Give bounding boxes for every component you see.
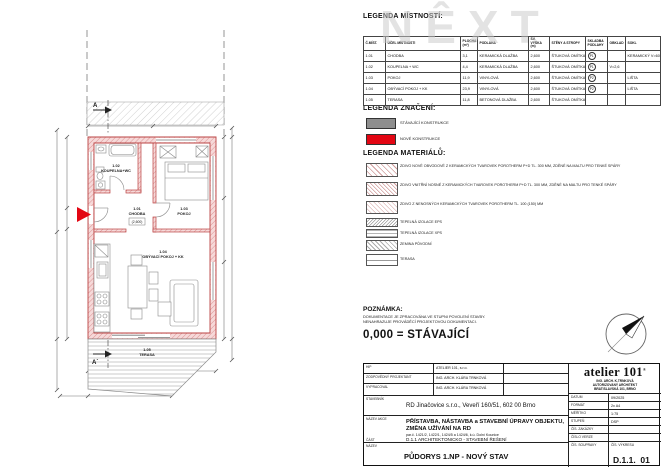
ground-hatch-band — [87, 102, 224, 125]
client-cell: STAVEBNÍK RD Jinačovice s.r.o., Veveří 1… — [364, 396, 569, 416]
floor-layer-badge: P2 — [588, 85, 597, 94]
cell: KOUPELNA + WC — [386, 62, 461, 73]
material-swatch — [366, 218, 398, 227]
drawing-number-cell: ČÍS. VÝKRESU D.1.1. 01 — [609, 442, 661, 467]
section-label-top: A — [93, 103, 98, 109]
meta-value — [609, 434, 661, 442]
floor-layer-badge: P2 — [588, 74, 597, 83]
stove-icon — [95, 292, 109, 306]
note-line: NENAHRAZUJE PROVÁDĚCÍ PROJEKTOVOU DOKUME… — [363, 319, 477, 324]
meta-label: FORMÁT — [569, 402, 609, 410]
project-title-line1: PŘÍSTAVBA, NÁSTAVBA a STAVEBNÍ ÚPRAVY OB… — [406, 419, 564, 425]
logo-line: BRATISLAVSKÁ 101, BRNO — [569, 387, 661, 391]
cell: V=2,6 — [608, 62, 626, 73]
section-label-bottom: A´ — [92, 360, 98, 366]
meta-label: ČÍSLO VERZE — [569, 434, 609, 442]
chair-icon — [149, 272, 158, 284]
cell — [608, 73, 626, 84]
cabinet-icon — [196, 146, 208, 157]
zero-level-note: 0,000 = STÁVAJÍCÍ — [363, 329, 469, 341]
signature-cell — [504, 364, 569, 374]
cell: POKOJ — [386, 73, 461, 84]
room-label-number: 1.04 — [159, 250, 167, 254]
wardrobe-icon — [160, 146, 176, 158]
cell: P1 — [586, 51, 608, 62]
table-row: 1.01 CHODBA 3,1 KERAMICKÁ DLAŽBA 2,600 Š… — [364, 51, 661, 62]
drawing-number: D.1.1. 01 — [613, 455, 650, 465]
room-label-name: CHODBA — [129, 212, 146, 216]
legend-label: NOVÉ KONSTRUKCE — [400, 136, 440, 141]
cell: PLOCHA (m²) — [461, 37, 478, 51]
dining-table-icon — [128, 266, 147, 308]
studio-logo: atelier 101® — [569, 366, 661, 379]
cell: LIŠTA — [626, 84, 661, 95]
legend-label: STÁVAJÍCÍ KONSTRUKCE — [400, 120, 449, 125]
legend-label: ZEMINA PŮVODNÍ — [400, 242, 432, 247]
cell — [586, 95, 608, 106]
cell: 2,600 — [529, 51, 550, 62]
cell: LIŠTA — [626, 73, 661, 84]
titleblock-label: ČÁST — [364, 437, 375, 442]
table-row: 1.04 OBÝVACÍ POKOJ + KK 23,9 VINYLOVÁ 2,… — [364, 84, 661, 95]
terrace — [88, 339, 216, 396]
cell: TERASA — [386, 95, 461, 106]
sink-icon — [97, 262, 108, 278]
room-label-name: TERASA — [139, 353, 155, 357]
cell: KERAMICKÁ DLAŽBA — [478, 51, 529, 62]
meta-value: 2x A4 — [609, 402, 661, 410]
north-arrow-icon — [600, 308, 652, 360]
material-swatch — [366, 163, 398, 177]
table-row: 1.05 TERASA 11,8 BETONOVÁ DLAŽBA 2,600 Š… — [364, 95, 661, 106]
meta-label: MĚŘÍTKO — [569, 410, 609, 418]
meta-label: STUPEŇ — [569, 418, 609, 426]
cell: SV. VÝŠKA (m) — [529, 37, 550, 51]
room-label-number: 1.01 — [133, 207, 140, 211]
cell: 1.02 — [364, 62, 386, 73]
rooms-legend-table: Č.MÍST. ÚČEL MÍSTNOSTI PLOCHA (m²) PODLA… — [363, 36, 661, 106]
project-title-line2: ZMĚNA UŽÍVÁNÍ NA RD — [406, 426, 471, 432]
room-label-name: KOUPELNA+WC — [101, 169, 131, 173]
signature-cell — [504, 384, 569, 396]
material-swatch — [366, 201, 398, 214]
room-label-number: 1.05 — [143, 348, 150, 352]
floor-plan: A — [0, 0, 363, 468]
material-swatch — [366, 182, 398, 196]
cell — [608, 51, 626, 62]
material-swatch — [366, 229, 398, 238]
titleblock-value: ING. ARCH. KLÁRA TRNKOVÁ — [434, 374, 504, 384]
cell: VINYLOVÁ — [478, 84, 529, 95]
cell: 11,8 — [461, 95, 478, 106]
cell: P1 — [586, 62, 608, 73]
legend-label: ZDIVO VNITŘNÍ NOSNÉ Z KERAMICKÝCH TVAROV… — [400, 183, 650, 188]
cell: VINYLOVÁ — [478, 73, 529, 84]
client-value: RD Jinačovice s.r.o., Veveří 160/51, 602… — [406, 403, 535, 409]
cell: P2 — [586, 73, 608, 84]
cell: Č.MÍST. — [364, 37, 386, 51]
chair-icon — [131, 309, 142, 319]
table-row: 1.03 POKOJ 11,9 VINYLOVÁ 2,600 ŠTUKOVÁ O… — [364, 73, 661, 84]
existing-construction-swatch — [366, 118, 396, 129]
cell: 2,600 — [529, 95, 550, 106]
cell: 1.04 — [364, 84, 386, 95]
titleblock-label: ČÍS. VÝKRESU — [609, 442, 661, 447]
titleblock-value: ATELIER 101, s.r.o. — [434, 364, 504, 374]
cell: OBKLAD — [608, 37, 626, 51]
legend-label: ZDIVO NOVÉ OBVODOVÉ Z KERAMICKÝCH TVAROV… — [400, 164, 650, 169]
cell: KERAMICKÁ DLAŽBA — [478, 62, 529, 73]
bathtub-icon — [109, 144, 136, 156]
meta-label: ČÍS. ZAKÁZKY — [569, 426, 609, 434]
registered-mark: ® — [643, 367, 646, 372]
washing-machine-icon — [96, 181, 105, 189]
cell: 4,4 — [461, 62, 478, 73]
meta-value: 09/2025 — [609, 394, 661, 402]
titleblock-label: ZODPOVĚDNÝ PROJEKTANT — [364, 374, 434, 384]
part-value: D.1.1 ARCHITEKTONICKO - STAVEBNÍ ŘEŠENÍ — [406, 437, 507, 442]
legend-label: TEPELNÁ IZOLACE XPS — [400, 231, 442, 236]
table-row: 1.02 KOUPELNA + WC 4,4 KERAMICKÁ DLAŽBA … — [364, 62, 661, 73]
meta-label: DATUM — [569, 394, 609, 402]
cell: STĚNY A STROPY — [550, 37, 586, 51]
room-label-number: 1.02 — [112, 164, 119, 168]
titleblock-value: ING. ARCH. KLÁRA TRNKOVÁ — [434, 384, 504, 396]
cell: 1.05 — [364, 95, 386, 106]
legend-label: TEPELNÁ IZOLACE EPS — [400, 220, 442, 225]
marks-legend-title: LEGENDA ZNAČENÍ: — [363, 105, 436, 112]
cell: ŠTUKOVÁ OMÍTKA — [550, 62, 586, 73]
cell: ŠTUKOVÁ OMÍTKA — [550, 51, 586, 62]
material-swatch — [366, 240, 398, 251]
cell: SKLADBA PODLAHY — [586, 37, 608, 51]
cell: 2,600 — [529, 62, 550, 73]
hob-icon — [95, 312, 109, 326]
cell: 11,9 — [461, 73, 478, 84]
cell: ŠTUKOVÁ OMÍTKA — [550, 73, 586, 84]
cell: CHODBA — [386, 51, 461, 62]
chair-icon — [131, 255, 142, 265]
cell: ÚČEL MÍSTNOSTI — [386, 37, 461, 51]
table-header-row: Č.MÍST. ÚČEL MÍSTNOSTI PLOCHA (m²) PODLA… — [364, 37, 661, 51]
cell: ŠTUKOVÁ OMÍTKA — [550, 95, 586, 106]
titleblock-label: STAVEBNÍK — [364, 396, 568, 401]
titleblock-label: VYPRACOVAL — [364, 384, 434, 396]
cell: 1.03 — [364, 73, 386, 84]
cell: 3,1 — [461, 51, 478, 62]
title-block: HIP ATELIER 101, s.r.o. ZODPOVĚDNÝ PROJE… — [363, 363, 660, 466]
cell: SOKL — [626, 37, 661, 51]
cell: 23,9 — [461, 84, 478, 95]
cell: OBÝVACÍ POKOJ + KK — [386, 84, 461, 95]
set-number-cell: ČÍS. SOUPRAVY — [569, 442, 609, 467]
cell: KERAMICKÝ V=60MM — [626, 51, 661, 62]
room-height-tag: (2,600) — [132, 220, 143, 224]
cell: 1.01 — [364, 51, 386, 62]
legend-label: ZDIVO Z NENOSNÝCH KERAMICKÝCH TVAROVEK P… — [400, 202, 600, 207]
titleblock-label: HIP — [364, 364, 434, 374]
chair-icon — [149, 289, 158, 301]
signature-cell — [504, 374, 569, 384]
note-title: POZNÁMKA: — [363, 306, 403, 313]
floor-layer-badge: P1 — [588, 52, 597, 61]
drawing-name-cell: NÁZEV PŮDORYS 1.NP - NOVÝ STAV — [364, 443, 569, 467]
materials-legend-title: LEGENDA MATERIÁLŮ: — [363, 150, 446, 157]
meta-value — [609, 426, 661, 434]
titleblock-label: NÁZEV — [364, 443, 568, 448]
drawing-name: PŮDORYS 1.NP - NOVÝ STAV — [404, 452, 508, 461]
room-label-name: OBÝVACÍ POKOJ + KK — [142, 254, 183, 259]
drawing-sheet: A — [0, 0, 662, 468]
cell: 2,600 — [529, 84, 550, 95]
coffee-table-icon — [158, 302, 171, 316]
cell: ŠTUKOVÁ OMÍTKA — [550, 84, 586, 95]
legend-label: TERASA — [400, 257, 415, 262]
cell — [626, 62, 661, 73]
cell — [608, 84, 626, 95]
material-swatch — [366, 254, 398, 266]
new-construction-swatch — [366, 134, 396, 145]
sofa-icon — [170, 280, 198, 326]
bed-icon — [165, 162, 208, 200]
cell: BETONOVÁ DLAŽBA — [478, 95, 529, 106]
rooms-legend-title: LEGENDA MÍSTNOSTÍ: — [363, 13, 443, 20]
meta-value: 1:75 — [609, 410, 661, 418]
room-label-number: 1.03 — [180, 207, 187, 211]
cell: P2 — [586, 84, 608, 95]
project-cell: NÁZEV AKCE PŘÍSTAVBA, NÁSTAVBA a STAVEBN… — [364, 416, 569, 443]
cell: 2,600 — [529, 73, 550, 84]
cell — [626, 95, 661, 106]
washbasin-icon — [96, 145, 106, 153]
logo-cell: atelier 101® ING. ARCH. K.TRNKOVÁ AUTORI… — [569, 364, 661, 394]
floor-layer-badge: P1 — [588, 63, 597, 72]
room-label-name: POKOJ — [177, 212, 190, 216]
meta-value: DSP — [609, 418, 661, 426]
cell — [608, 95, 626, 106]
cell: PODLAHA — [478, 37, 529, 51]
